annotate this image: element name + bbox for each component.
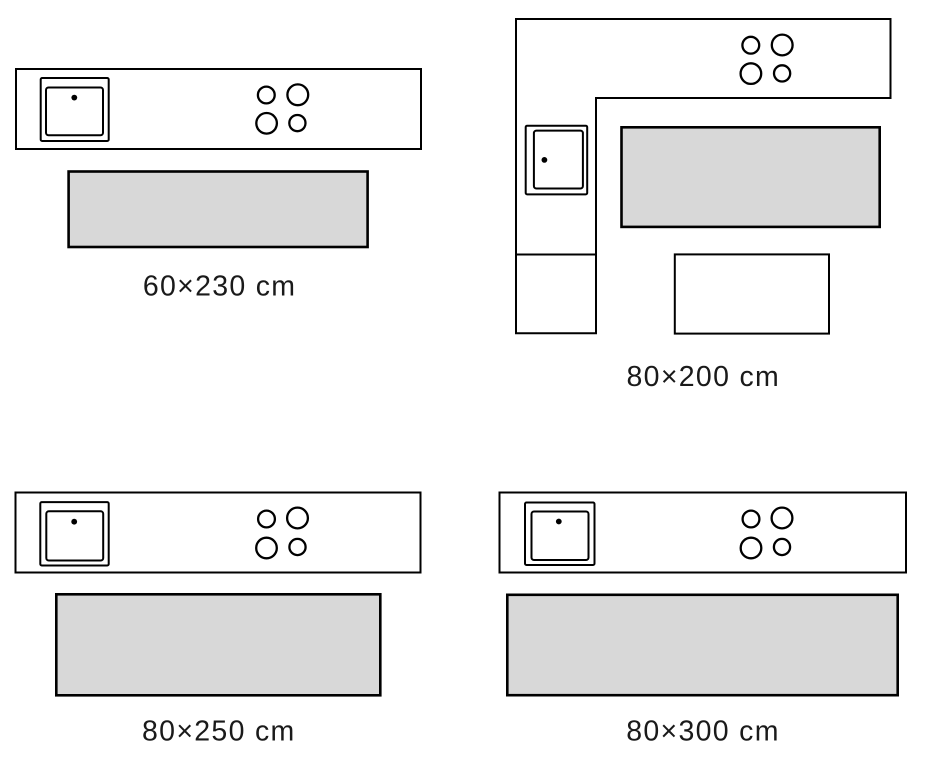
svg-text:60×230 cm: 60×230 cm [143,271,297,303]
svg-text:80×250 cm: 80×250 cm [142,715,296,747]
svg-text:80×300 cm: 80×300 cm [626,715,780,747]
svg-text:80×200 cm: 80×200 cm [627,361,781,393]
